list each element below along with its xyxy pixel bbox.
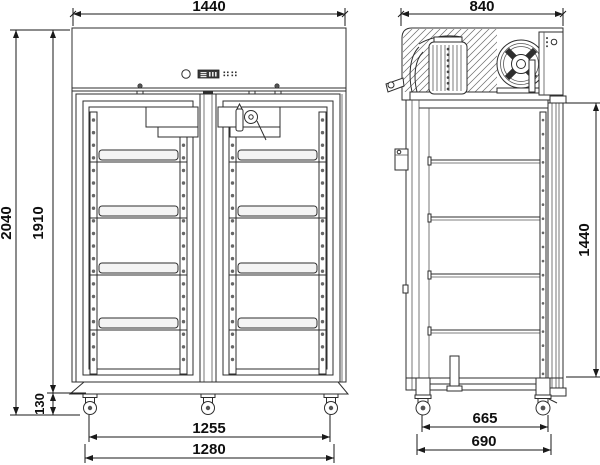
dimension-side-base-depth: 690 [417, 433, 551, 455]
condensing-unit [386, 28, 563, 100]
caster-wheel [201, 394, 215, 415]
drain-pipe [450, 356, 459, 386]
brake-lever [549, 399, 557, 403]
dim-label-caster-height: 130 [32, 393, 47, 415]
dim-label-side-base-depth: 690 [471, 433, 496, 450]
leg-bracket [536, 378, 550, 395]
side-body [395, 96, 566, 396]
dim-label-overall-height: 2040 [0, 206, 15, 239]
dimension-caster-height: 130 [32, 393, 53, 415]
door-side [548, 96, 566, 396]
dimension-side-caster-span: 665 [422, 410, 548, 432]
dim-label-front-base-width: 1280 [192, 441, 225, 458]
dim-label-side-door-height: 1440 [576, 223, 593, 256]
casters-front [83, 394, 338, 415]
dim-label-front-caster-span: 1255 [192, 420, 225, 437]
technical-drawing-page: 1440 2040 1910 130 1255 [0, 0, 600, 465]
caster-wheel [415, 395, 431, 415]
side-view [386, 28, 566, 415]
plinth-front [70, 382, 348, 394]
dimension-front-caster-span: 1255 [89, 415, 330, 442]
screw-icon [275, 84, 279, 88]
dim-label-side-caster-span: 665 [472, 410, 497, 427]
dim-label-side-depth: 840 [469, 0, 494, 15]
center-mullion [200, 94, 216, 382]
fan-motor-icon [245, 111, 258, 124]
fan-mount [497, 88, 545, 93]
refrigerator-dimension-drawing: 1440 2040 1910 130 1255 [0, 0, 600, 465]
dim-label-front-width: 1440 [192, 0, 225, 15]
rear-fitting [403, 285, 408, 293]
dimension-side-depth: 840 [398, 0, 566, 26]
leg-bracket [416, 378, 430, 395]
dimension-front-width: 1440 [70, 0, 348, 26]
body-outline [406, 100, 548, 390]
electrical-box [539, 32, 563, 95]
door-top-hinge [550, 96, 566, 103]
dim-label-body-height: 1910 [30, 206, 47, 239]
dimension-front-base-width: 1280 [85, 441, 334, 463]
rear-bracket [386, 78, 404, 92]
drain-foot [447, 386, 462, 391]
caster-wheel-brake [535, 395, 557, 415]
bracket-channel [529, 60, 535, 92]
door-bottom-hinge [550, 388, 566, 396]
front-view [70, 28, 348, 415]
caster-wheel [83, 394, 97, 415]
screw-icon [138, 84, 142, 88]
rear-junction-box [395, 149, 408, 170]
caster-wheel [324, 394, 338, 415]
dimension-side-door-height: 1440 [566, 103, 600, 377]
compressor-block [429, 37, 467, 94]
valve-body [236, 109, 243, 131]
